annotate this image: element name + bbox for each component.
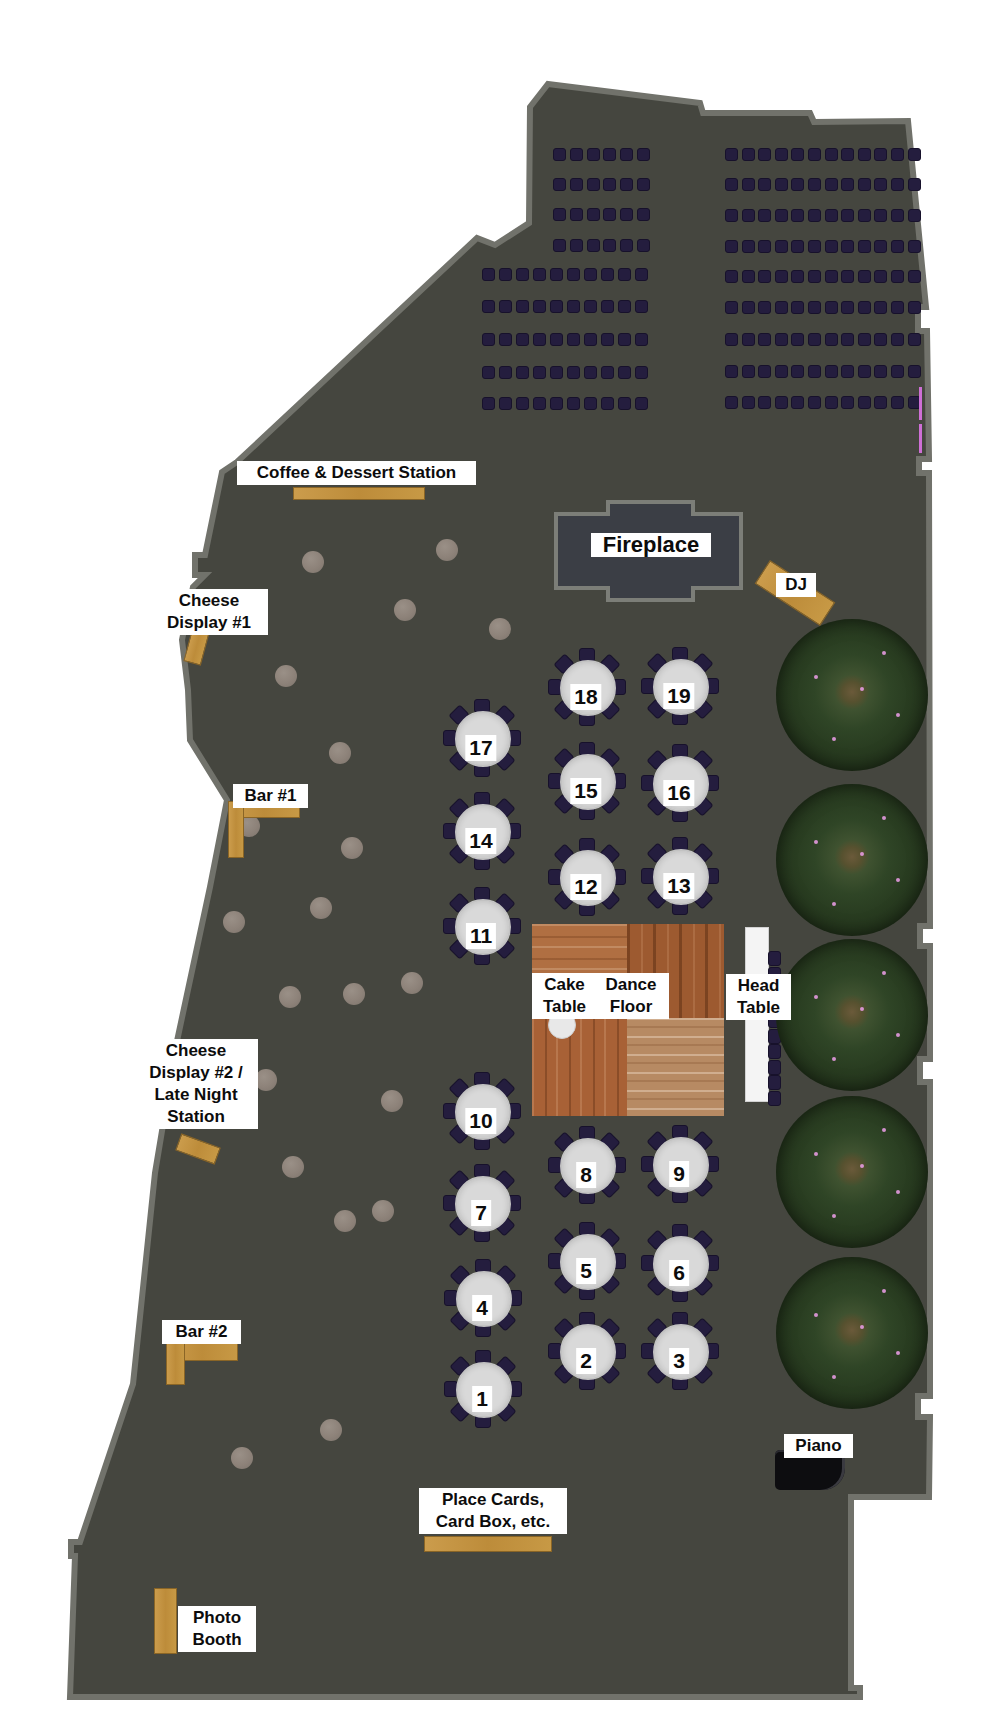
ceremony-chair [791,178,804,191]
ceremony-chair [553,148,566,161]
ceremony-chair [874,148,887,161]
flower-speck [882,816,886,820]
flower-speck [896,1190,900,1194]
ceremony-chair [874,270,887,283]
ceremony-chair [791,240,804,253]
ceremony-chair [587,239,600,252]
table-number-19: 19 [663,683,694,709]
ceremony-chair [891,178,904,191]
structural-pillar [255,1069,277,1091]
ceremony-chair [858,396,871,409]
structural-pillar [320,1419,342,1441]
ceremony-chair [499,333,512,346]
ceremony-chair [825,301,838,314]
structural-pillar [341,837,363,859]
label-fireplace: Fireplace [591,533,711,557]
ceremony-chair [791,148,804,161]
label-line: Cheese [153,590,265,612]
ceremony-chair [550,268,563,281]
table-number-8: 8 [576,1162,596,1188]
head-table-chair [768,951,781,966]
ceremony-chair [825,396,838,409]
ceremony-chair [570,239,583,252]
structural-pillar [223,911,245,933]
ceremony-chair [908,209,921,222]
ceremony-chair [570,148,583,161]
ceremony-chair [891,333,904,346]
label-line: Card Box, etc. [422,1511,564,1533]
ceremony-chair [603,148,616,161]
ceremony-chair [874,240,887,253]
label-line: Station [137,1106,255,1128]
flower-speck [882,1289,886,1293]
ceremony-chair [758,270,771,283]
ceremony-chair [758,365,771,378]
label-line: Cake [535,974,594,996]
label-line: Display #2 / [137,1062,255,1084]
ceremony-chair [908,270,921,283]
ceremony-chair [618,333,631,346]
ceremony-chair [482,366,495,379]
structural-pillar [343,983,365,1005]
ceremony-chair [808,240,821,253]
structural-pillar [231,1447,253,1469]
ceremony-chair [635,366,648,379]
ceremony-chair [637,208,650,221]
ceremony-chair [791,396,804,409]
ceremony-chair [874,301,887,314]
label-line: Piano [787,1435,850,1457]
structural-pillar [279,986,301,1008]
tree [776,784,928,936]
ceremony-chair [553,239,566,252]
ceremony-chair [775,396,788,409]
ceremony-chair [637,239,650,252]
ceremony-chair [858,178,871,191]
label-line: Bar #1 [236,785,305,807]
ceremony-chair [587,208,600,221]
label-cheese-display-1: CheeseDisplay #1 [150,589,268,635]
ceremony-chair [516,333,529,346]
ceremony-chair [742,396,755,409]
ceremony-chair [742,178,755,191]
label-line: Bar #2 [165,1321,238,1343]
ceremony-chair [791,365,804,378]
flower-speck [832,902,836,906]
ceremony-chair [725,240,738,253]
table-number-10: 10 [465,1108,496,1134]
ceremony-chair [775,333,788,346]
ceremony-chair [637,148,650,161]
ceremony-chair [808,396,821,409]
ceremony-chair [567,333,580,346]
head-table-chair [768,1075,781,1090]
table-number-4: 4 [472,1295,492,1321]
ceremony-chair [618,268,631,281]
floor-plan: 18191715161412131110897564231Coffee & De… [0,0,1000,1733]
ceremony-chair [620,208,633,221]
structural-pillar [275,665,297,687]
table-number-2: 2 [576,1348,596,1374]
label-line: Fireplace [594,534,708,556]
ceremony-chair [825,178,838,191]
ceremony-chair [742,333,755,346]
ceremony-chair [725,365,738,378]
ceremony-chair [791,301,804,314]
ceremony-chair [550,333,563,346]
ceremony-chair [567,300,580,313]
ceremony-chair [858,240,871,253]
ceremony-chair [791,333,804,346]
pink-wall-mark [919,387,922,420]
bar-2-counter-side [166,1343,185,1385]
ceremony-chair [516,300,529,313]
bar-1-counter-side [228,801,244,858]
ceremony-chair [587,148,600,161]
ceremony-chair [841,178,854,191]
structural-pillar [302,551,324,573]
ceremony-chair [584,366,597,379]
structural-pillar [329,742,351,764]
flower-speck [814,1152,818,1156]
ceremony-chair [725,209,738,222]
ceremony-chair [758,301,771,314]
label-line: Table [535,996,594,1018]
ceremony-chair [516,366,529,379]
ceremony-chair [891,301,904,314]
ceremony-chair [891,209,904,222]
flower-speck [814,995,818,999]
table-number-17: 17 [465,735,496,761]
ceremony-chair [553,208,566,221]
dance-floor-panel [627,1018,724,1116]
ceremony-chair [550,397,563,410]
structural-pillar [381,1090,403,1112]
ceremony-chair [637,178,650,191]
flower-speck [896,713,900,717]
ceremony-chair [775,209,788,222]
ceremony-chair [825,365,838,378]
table-number-6: 6 [669,1260,689,1286]
ceremony-chair [601,268,614,281]
flower-speck [832,1375,836,1379]
ceremony-chair [758,209,771,222]
ceremony-chair [841,270,854,283]
ceremony-chair [742,209,755,222]
ceremony-chair [808,148,821,161]
ceremony-chair [635,300,648,313]
table-number-13: 13 [663,873,694,899]
ceremony-chair [553,178,566,191]
structural-pillar [282,1156,304,1178]
ceremony-chair [603,208,616,221]
table-number-18: 18 [570,684,601,710]
table-number-15: 15 [570,778,601,804]
ceremony-chair [742,270,755,283]
ceremony-chair [533,268,546,281]
label-line: Photo [181,1607,253,1629]
ceremony-chair [499,268,512,281]
ceremony-chair [775,178,788,191]
label-line: Table [729,997,788,1019]
ceremony-chair [858,270,871,283]
ceremony-chair [841,148,854,161]
table-number-12: 12 [570,874,601,900]
label-photo-booth: PhotoBooth [178,1606,256,1652]
ceremony-chair [550,300,563,313]
ceremony-chair [808,270,821,283]
ceremony-chair [516,268,529,281]
structural-pillar [394,599,416,621]
ceremony-chair [841,209,854,222]
ceremony-chair [825,333,838,346]
ceremony-chair [499,300,512,313]
ceremony-chair [908,301,921,314]
ceremony-chair [584,300,597,313]
flower-speck [882,1128,886,1132]
ceremony-chair [482,397,495,410]
label-bar-1: Bar #1 [233,784,308,808]
head-table-chair [768,1060,781,1075]
flower-speck [832,737,836,741]
ceremony-chair [775,148,788,161]
ceremony-chair [775,270,788,283]
label-line: Dance [596,974,666,996]
structural-pillar [489,618,511,640]
label-line: Place Cards, [422,1489,564,1511]
ceremony-chair [908,240,921,253]
ceremony-chair [874,333,887,346]
ceremony-chair [618,300,631,313]
label-line: Head [729,975,788,997]
ceremony-chair [635,397,648,410]
label-cheese-display-2: CheeseDisplay #2 /Late NightStation [134,1039,258,1129]
ceremony-chair [808,178,821,191]
ceremony-chair [601,300,614,313]
ceremony-chair [620,239,633,252]
flower-speck [814,675,818,679]
flower-speck [896,1033,900,1037]
ceremony-chair [567,268,580,281]
table-number-1: 1 [472,1386,492,1412]
flower-speck [814,1313,818,1317]
ceremony-chair [482,333,495,346]
ceremony-chair [482,300,495,313]
ceremony-chair [725,333,738,346]
ceremony-chair [858,333,871,346]
ceremony-chair [891,396,904,409]
ceremony-chair [908,148,921,161]
ceremony-chair [825,148,838,161]
ceremony-chair [841,301,854,314]
ceremony-chair [725,270,738,283]
flower-speck [860,687,864,691]
tree [776,939,928,1091]
ceremony-chair [601,333,614,346]
ceremony-chair [725,148,738,161]
head-table-chair [768,1044,781,1059]
ceremony-chair [533,397,546,410]
ceremony-chair [775,240,788,253]
label-coffee-dessert: Coffee & Dessert Station [237,461,476,485]
ceremony-chair [603,178,616,191]
ceremony-chair [601,366,614,379]
dance-floor-panel [532,1018,629,1116]
label-line: DJ [779,574,813,596]
ceremony-chair [891,240,904,253]
ceremony-chair [891,148,904,161]
table-number-5: 5 [576,1258,596,1284]
ceremony-chair [758,396,771,409]
label-line: Late Night [137,1084,255,1106]
ceremony-chair [858,148,871,161]
ceremony-chair [742,301,755,314]
pink-wall-mark [919,424,922,453]
ceremony-chair [758,240,771,253]
flower-speck [860,1325,864,1329]
ceremony-chair [825,209,838,222]
ceremony-chair [516,397,529,410]
ceremony-chair [725,301,738,314]
structural-pillar [401,972,423,994]
ceremony-chair [725,396,738,409]
ceremony-chair [601,397,614,410]
structural-pillar [310,897,332,919]
table-number-3: 3 [669,1348,689,1374]
head-table-chair [768,1091,781,1106]
ceremony-chair [550,366,563,379]
label-place-cards: Place Cards,Card Box, etc. [419,1488,567,1534]
ceremony-chair [533,366,546,379]
ceremony-chair [874,365,887,378]
ceremony-chair [841,396,854,409]
coffee-dessert-table [293,487,425,500]
ceremony-chair [758,178,771,191]
ceremony-chair [874,209,887,222]
ceremony-chair [742,240,755,253]
ceremony-chair [742,365,755,378]
table-number-7: 7 [471,1200,491,1226]
ceremony-chair [758,333,771,346]
ceremony-chair [635,268,648,281]
ceremony-chair [841,365,854,378]
ceremony-chair [908,333,921,346]
flower-speck [814,840,818,844]
ceremony-chair [791,270,804,283]
label-piano: Piano [784,1434,853,1458]
label-cake-table: CakeTable [532,973,597,1019]
label-head-table: HeadTable [726,974,791,1020]
ceremony-chair [567,397,580,410]
ceremony-chair [775,301,788,314]
ceremony-chair [808,333,821,346]
structural-pillar [436,539,458,561]
flower-speck [896,878,900,882]
ceremony-chair [858,365,871,378]
ceremony-chair [874,178,887,191]
ceremony-chair [742,148,755,161]
label-line: Coffee & Dessert Station [240,462,473,484]
label-line: Floor [596,996,666,1018]
flower-speck [860,1007,864,1011]
ceremony-chair [533,300,546,313]
ceremony-chair [635,333,648,346]
tree [776,619,928,771]
tree [776,1096,928,1248]
ceremony-chair [758,148,771,161]
ceremony-chair [499,397,512,410]
ceremony-chair [482,268,495,281]
ceremony-chair [858,301,871,314]
structural-pillar [334,1210,356,1232]
label-bar-2: Bar #2 [162,1320,241,1344]
ceremony-chair [808,365,821,378]
ceremony-chair [891,270,904,283]
ceremony-chair [908,178,921,191]
ceremony-chair [618,366,631,379]
flower-speck [860,1164,864,1168]
ceremony-chair [570,208,583,221]
ceremony-chair [725,178,738,191]
tree [776,1257,928,1409]
ceremony-chair [584,268,597,281]
ceremony-chair [841,333,854,346]
ceremony-chair [584,397,597,410]
ceremony-chair [808,301,821,314]
ceremony-chair [908,365,921,378]
ceremony-chair [808,209,821,222]
ceremony-chair [841,240,854,253]
flower-speck [882,651,886,655]
table-number-9: 9 [669,1161,689,1187]
label-dj: DJ [776,573,816,597]
label-dance-floor: DanceFloor [593,973,669,1019]
ceremony-chair [825,240,838,253]
label-line: Booth [181,1629,253,1651]
photo-booth-unit [154,1588,177,1654]
flower-speck [832,1057,836,1061]
ceremony-chair [858,209,871,222]
ceremony-chair [533,333,546,346]
flower-speck [860,852,864,856]
flower-speck [882,971,886,975]
table-number-11: 11 [466,923,496,949]
table-number-16: 16 [663,780,694,806]
ceremony-chair [584,333,597,346]
ceremony-chair [618,397,631,410]
ceremony-chair [620,148,633,161]
ceremony-chair [791,209,804,222]
ceremony-chair [603,239,616,252]
ceremony-chair [825,270,838,283]
structural-pillar [372,1200,394,1222]
flower-speck [896,1351,900,1355]
table-number-14: 14 [465,828,496,854]
ceremony-chair [620,178,633,191]
label-line: Cheese [137,1040,255,1062]
place-cards-table [424,1536,552,1552]
ceremony-chair [499,366,512,379]
flower-speck [832,1214,836,1218]
ceremony-chair [874,396,887,409]
ceremony-chair [891,365,904,378]
label-line: Display #1 [153,612,265,634]
ceremony-chair [570,178,583,191]
ceremony-chair [775,365,788,378]
ceremony-chair [587,178,600,191]
ceremony-chair [567,366,580,379]
